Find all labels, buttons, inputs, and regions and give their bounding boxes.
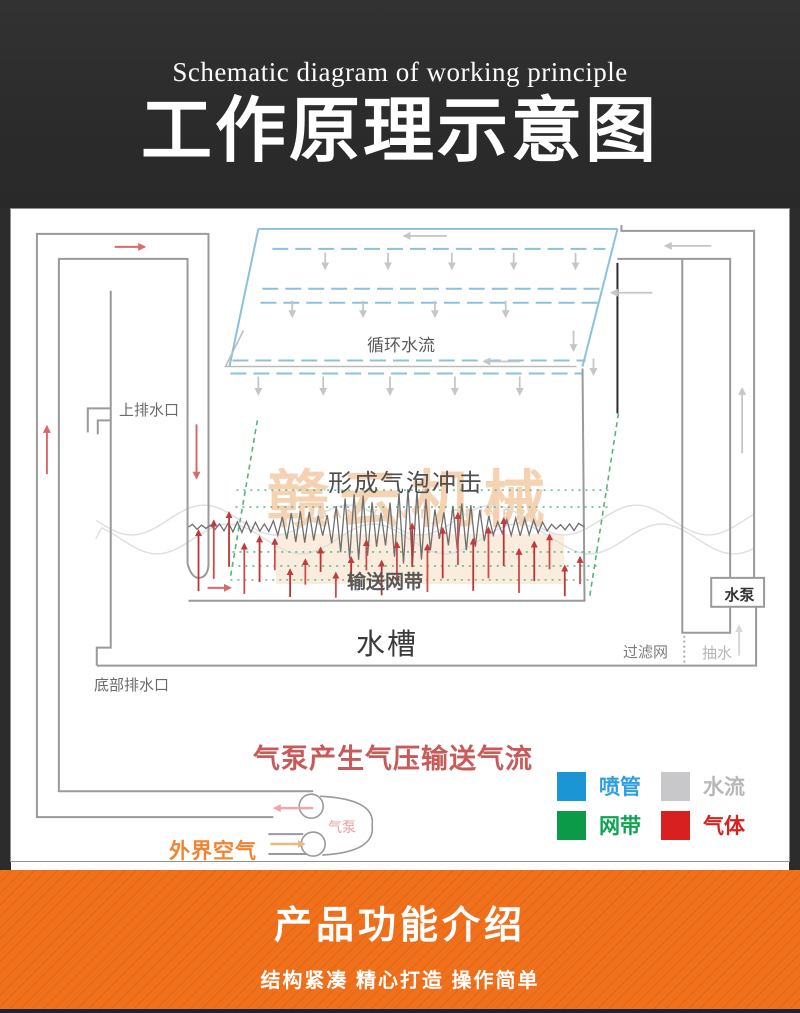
label-water-pump: 水泵 <box>713 581 766 608</box>
label-bubble-impact: 形成气泡冲击 <box>328 463 484 498</box>
legend-item-water-flow: 水流 <box>661 771 745 801</box>
label-outside-air: 外界空气 <box>169 835 257 865</box>
footer-tagline: 结构紧凑 精心打造 操作简单 <box>0 964 800 993</box>
page-title: 工作原理示意图 <box>0 92 800 174</box>
label-circulating-water: 循环水流 <box>367 331 435 356</box>
legend-swatch-red <box>661 811 690 840</box>
footer-title: 产品功能介绍 <box>0 870 800 949</box>
diagram-panel: 赣云机械 GAN YUN MACHINERY <box>10 208 790 862</box>
riser-pipe <box>617 225 754 578</box>
legend-item-spray-pipe: 喷管 <box>557 771 661 801</box>
label-water-tank: 水槽 <box>356 621 418 663</box>
page: Schematic diagram of working principle 工… <box>0 0 800 1013</box>
footer-bottom-strip <box>0 1009 800 1013</box>
label-air-pump: 气泵 <box>328 817 356 837</box>
label-air-pressure-note: 气泵产生气压输送气流 <box>253 737 533 776</box>
legend-label: 喷管 <box>599 771 641 801</box>
legend-label: 气体 <box>703 810 745 840</box>
legend-item-mesh-belt: 网带 <box>557 810 661 840</box>
legend-label: 网带 <box>599 810 641 840</box>
label-bottom-drain: 底部排水口 <box>94 674 169 695</box>
hero-subtitle-en: Schematic diagram of working principle <box>0 0 800 88</box>
label-conveyor-belt: 输送网带 <box>347 567 423 594</box>
label-upper-drain: 上排水口 <box>119 399 179 420</box>
legend-swatch-green <box>557 811 586 840</box>
legend: 喷管 水流 网带 气体 <box>557 771 745 840</box>
legend-swatch-blue <box>557 772 586 801</box>
label-filter-net: 过滤网 <box>623 641 668 662</box>
legend-label: 水流 <box>703 771 745 801</box>
legend-item-gas: 气体 <box>661 810 745 840</box>
belt-edges <box>230 413 618 597</box>
footer-section: 产品功能介绍 结构紧凑 精心打造 操作简单 <box>0 870 800 1009</box>
label-pump-water: 抽水 <box>702 642 732 663</box>
panel-bottom-margin <box>11 862 789 870</box>
legend-swatch-gray <box>661 772 690 801</box>
hero-section: Schematic diagram of working principle 工… <box>0 0 800 208</box>
